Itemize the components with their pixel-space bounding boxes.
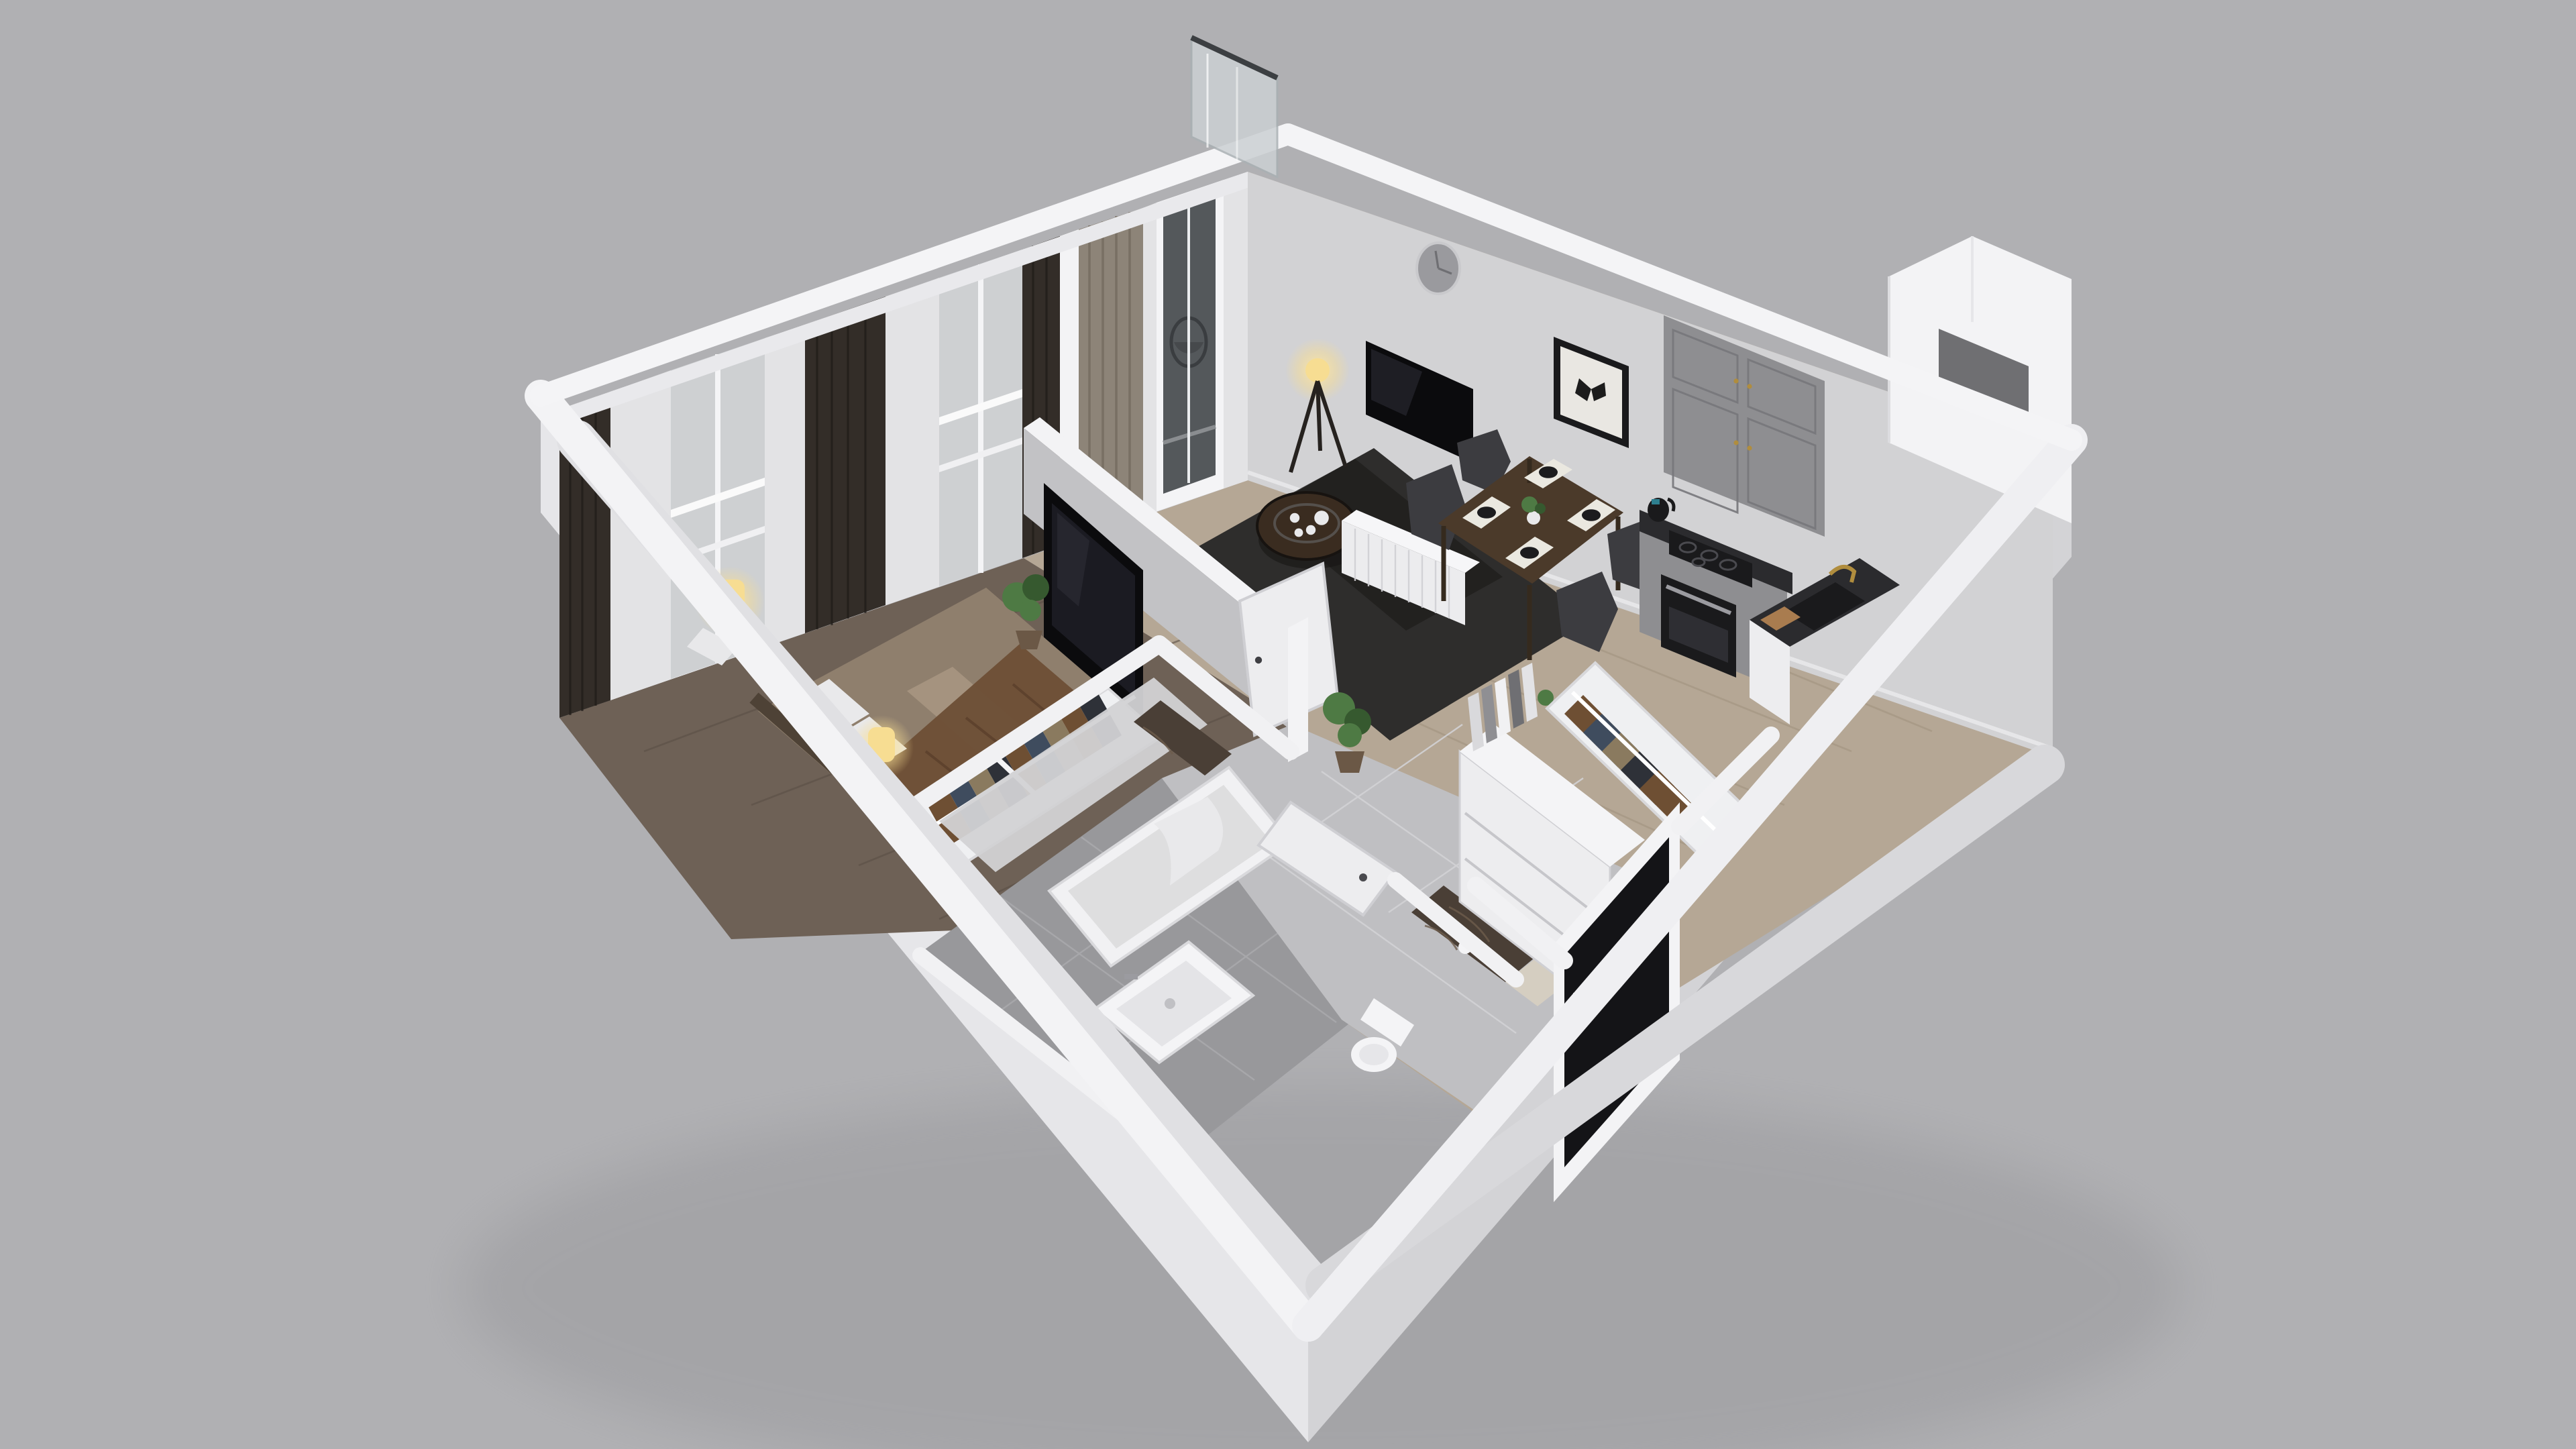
teacup	[1306, 525, 1316, 535]
teacup	[1295, 529, 1303, 537]
dinner-plate	[1520, 547, 1539, 559]
sheer-curtain	[885, 278, 939, 605]
sheer-curtain	[1224, 172, 1248, 488]
toilet-seat	[1359, 1044, 1389, 1065]
basin-drain	[1165, 998, 1175, 1009]
dinner-plate	[1539, 466, 1558, 478]
table-plant	[1535, 503, 1546, 514]
door-handle	[1255, 657, 1262, 663]
apartment-floorplan-render	[0, 0, 2576, 1449]
teapot	[1314, 511, 1329, 525]
balcony-door	[1157, 180, 1224, 511]
sheer-curtain	[765, 325, 805, 647]
lamp-bulb	[1305, 358, 1330, 382]
bedroom-window-2	[939, 250, 1022, 586]
coffee-table-top	[1257, 492, 1356, 559]
teacup	[1290, 513, 1299, 523]
dinner-plate	[1582, 509, 1601, 521]
wall-clock	[1417, 243, 1460, 294]
dinner-plate	[1477, 506, 1496, 519]
door-handle	[1359, 873, 1367, 881]
door-jamb	[1288, 617, 1308, 762]
sheer-curtain	[1143, 203, 1157, 517]
basin-tap	[1124, 974, 1138, 979]
